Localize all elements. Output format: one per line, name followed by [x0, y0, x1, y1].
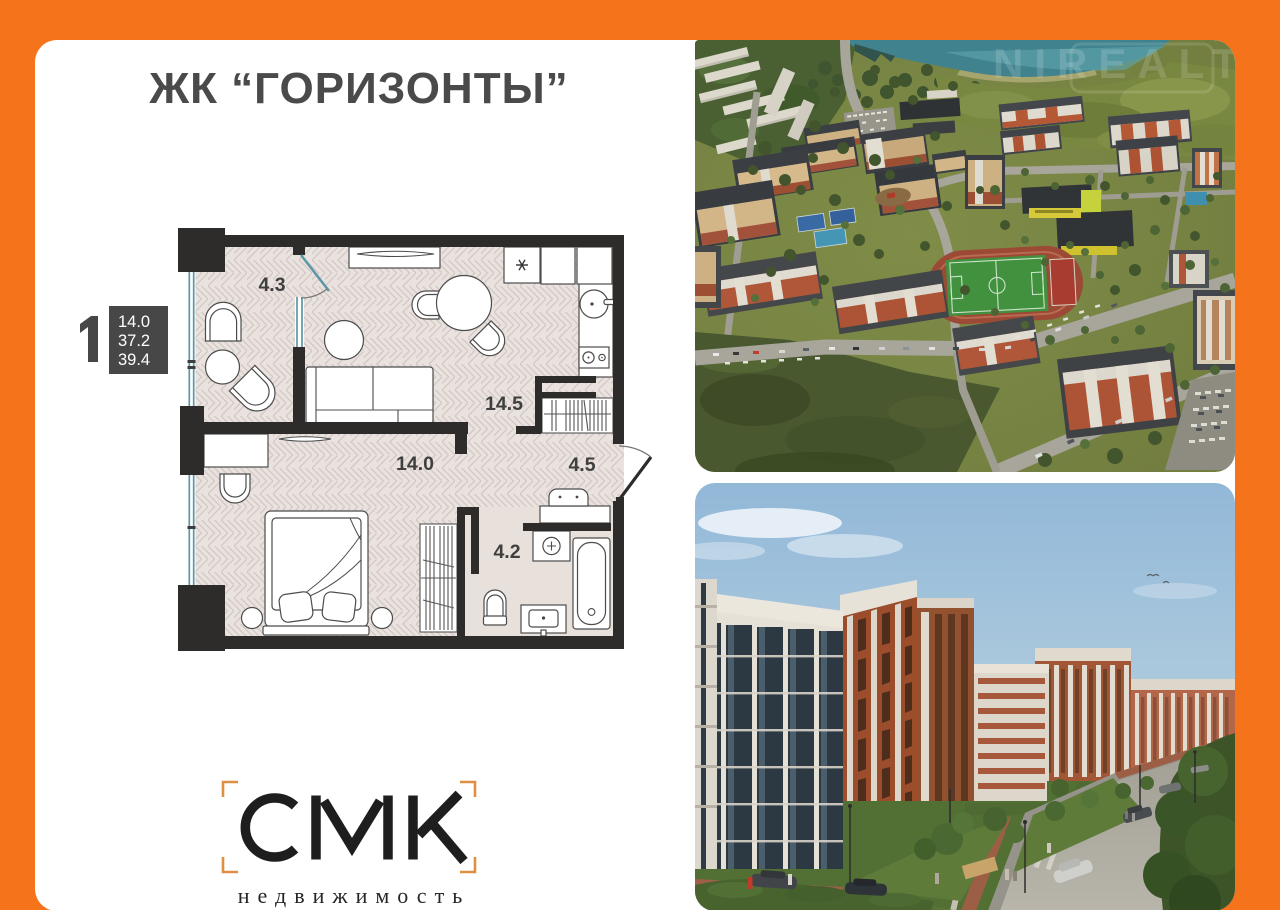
svg-text:4.5: 4.5	[568, 454, 595, 476]
svg-text:4.3: 4.3	[258, 274, 285, 296]
svg-text:4.2: 4.2	[493, 541, 520, 563]
svg-text:14.5: 14.5	[485, 393, 523, 415]
svg-text:14.0: 14.0	[396, 453, 434, 475]
svg-text:недвижимость: недвижимость	[238, 883, 470, 908]
svg-text:NIREALT: NIREALT	[993, 40, 1235, 87]
